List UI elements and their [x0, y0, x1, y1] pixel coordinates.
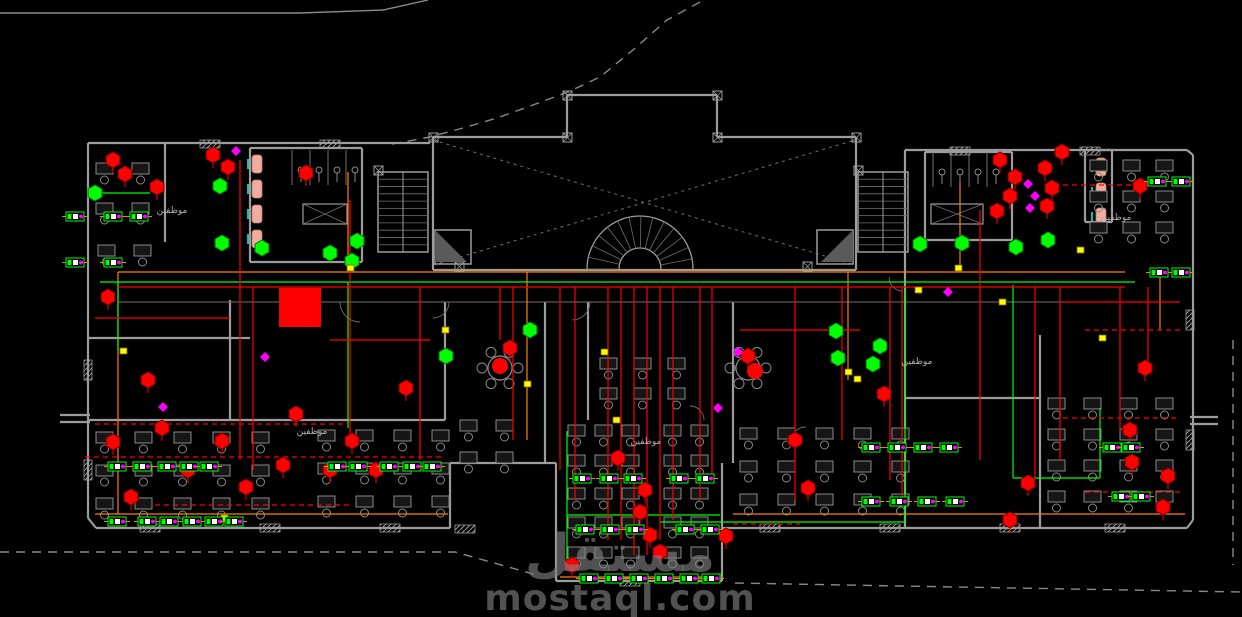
detector-module-strip: [858, 497, 884, 506]
workstation-desk: [1123, 191, 1140, 212]
workstation-desk: [1123, 160, 1140, 181]
workstation-desk: [96, 498, 113, 519]
workstation-desk: [1084, 491, 1101, 512]
wall-hatch: [1186, 310, 1194, 330]
workstation-desk: [778, 494, 795, 515]
workstation-desk: [1048, 491, 1065, 512]
site-boundary-line: [0, 0, 428, 13]
speaker-device-green: [439, 348, 453, 364]
wall-hatch: [200, 140, 220, 148]
room-label: موظفين: [157, 206, 188, 216]
wall-hatch: [760, 524, 780, 532]
sounder-device-red: [565, 557, 579, 578]
workstation-desk: [778, 461, 795, 482]
module-device-magenta: [1030, 191, 1040, 201]
workstation-desk: [691, 547, 708, 568]
door-swing-arc: [690, 406, 704, 420]
workstation-desk: [854, 461, 871, 482]
speaker-device-green: [523, 322, 537, 338]
detector-module-strip: [62, 258, 88, 267]
workstation-desk: [496, 420, 513, 441]
module-device-magenta: [1025, 203, 1035, 213]
workstation-desk: [1048, 398, 1065, 419]
workstation-desk: [740, 461, 757, 482]
speaker-device-green: [255, 240, 269, 256]
workstation-desk: [892, 461, 909, 482]
detector-module-strip: [576, 574, 602, 583]
detector-device-yellow: [442, 327, 449, 333]
wall-hatch: [950, 147, 970, 155]
detector-module-strip: [62, 212, 88, 221]
workstation-desk: [1123, 222, 1140, 243]
detector-device-yellow: [854, 376, 861, 382]
workstation-desk: [460, 420, 477, 441]
wall-hatch: [84, 360, 92, 380]
detector-module-strip: [666, 474, 692, 483]
workstation-desk: [1156, 222, 1173, 243]
speaker-device-green: [913, 236, 927, 252]
detector-module-strip: [884, 443, 910, 452]
detector-module-strip: [156, 517, 182, 526]
sounder-device-red: [1003, 188, 1017, 209]
door-swing-arc: [433, 302, 449, 318]
wall-hatch: [1186, 430, 1194, 450]
speaker-device-green: [866, 356, 880, 372]
stall-figure: [975, 169, 981, 184]
detector-module-strip: [601, 574, 627, 583]
workstation-desk: [1084, 429, 1101, 450]
speaker-device-green: [215, 235, 229, 251]
detector-module-strip: [1168, 268, 1194, 277]
sounder-device-red: [1156, 499, 1170, 520]
wall-segment: [1187, 520, 1193, 528]
detector-device-yellow: [915, 287, 922, 293]
sounder-device-red: [1138, 360, 1152, 381]
speaker-device-green: [829, 323, 843, 339]
workstation-desk: [174, 432, 191, 453]
workstation-desk: [595, 488, 612, 509]
sounder-device-red: [1040, 198, 1054, 219]
detector-module-strip: [129, 462, 155, 471]
detector-module-strip: [620, 474, 646, 483]
workstation-desk: [668, 358, 685, 379]
wall-hatch: [1080, 147, 1100, 155]
workstation-desk: [568, 425, 585, 446]
floor-plan-drawing: موظفينموظفينموظفينموظفينموظفين: [0, 0, 1242, 617]
speaker-device-green: [1009, 239, 1023, 255]
detector-module-strip: [221, 517, 247, 526]
detector-module-strip: [100, 212, 126, 221]
detector-module-strip: [697, 525, 723, 534]
detector-module-strip: [104, 462, 130, 471]
detector-module-strip: [914, 497, 940, 506]
call-point-device: [747, 363, 763, 379]
sounder-device-red: [638, 482, 652, 503]
wall-hatch: [455, 525, 475, 533]
site-boundary-dashed: [735, 583, 1242, 592]
module-device-magenta: [260, 352, 270, 362]
door-swing-arc: [889, 277, 903, 291]
detector-device-yellow: [999, 299, 1006, 305]
detector-device-yellow: [524, 381, 531, 387]
workstation-desk: [816, 428, 833, 449]
room-label: موظفين: [631, 437, 662, 447]
sounder-device-red: [289, 406, 303, 427]
detector-module-strip: [936, 443, 962, 452]
detector-module-strip: [672, 525, 698, 534]
sounder-device-red: [276, 457, 290, 478]
workstation-desk: [1156, 398, 1173, 419]
detector-module-strip: [692, 474, 718, 483]
room-label: موظفين: [902, 357, 933, 367]
sounder-device-red: [215, 433, 229, 454]
detector-device-yellow: [1077, 247, 1084, 253]
speaker-device-green: [955, 235, 969, 251]
cad-viewport[interactable]: موظفينموظفينموظفينموظفينموظفين مستقل mos…: [0, 0, 1242, 617]
detector-module-strip: [886, 497, 912, 506]
workstation-desk: [1090, 222, 1107, 243]
detector-module-strip: [1128, 492, 1154, 501]
sounder-device-red: [118, 166, 132, 187]
wall-hatch: [880, 524, 900, 532]
workstation-desk: [134, 245, 151, 266]
detector-module-strip: [698, 574, 724, 583]
workstation-desk: [740, 494, 757, 515]
detector-module-strip: [345, 462, 371, 471]
staircase: [858, 172, 908, 252]
detector-module-strip: [1118, 443, 1144, 452]
detector-module-strip: [1144, 177, 1170, 186]
workstation-desk: [568, 488, 585, 509]
workstation-desk: [135, 432, 152, 453]
sounder-device-red: [643, 527, 657, 548]
detector-module-strip: [626, 574, 652, 583]
detector-module-strip: [569, 474, 595, 483]
stall-figure: [957, 169, 963, 184]
detector-module-strip: [100, 258, 126, 267]
detector-module-strip: [196, 462, 222, 471]
sounder-device-red: [1161, 468, 1175, 489]
workstation-desk: [634, 388, 651, 409]
detector-module-strip: [597, 525, 623, 534]
fan-staircase: [587, 216, 693, 269]
alarm-panel-block: [279, 288, 321, 327]
sounder-device-red: [399, 380, 413, 401]
workstation-desk: [634, 358, 651, 379]
corner-planter: [817, 230, 853, 264]
sounder-device-red: [1008, 169, 1022, 190]
sounder-device-red: [101, 289, 115, 310]
speaker-device-green: [831, 350, 845, 366]
sounder-device-red: [1021, 475, 1035, 496]
workstation-desk: [740, 428, 757, 449]
wall-hatch: [380, 524, 400, 532]
sounder-device-red: [206, 147, 220, 168]
sounder-device-red: [990, 203, 1004, 224]
workstation-desk: [595, 425, 612, 446]
sounder-device-red: [150, 179, 164, 200]
sounder-device-red: [611, 450, 625, 471]
detector-module-strip: [376, 462, 402, 471]
workstation-desk: [1156, 191, 1173, 212]
sounder-device-red: [239, 479, 253, 500]
workstation-desk: [595, 455, 612, 476]
workstation-desk: [252, 465, 269, 486]
workstation-desk: [1120, 398, 1137, 419]
module-device-magenta: [713, 403, 723, 413]
sounder-device-red: [877, 386, 891, 407]
detector-module-strip: [126, 212, 152, 221]
sounder-device-red: [503, 340, 517, 361]
corner-planter: [435, 230, 471, 264]
wall-segment: [1187, 150, 1193, 155]
sounder-device-red: [653, 544, 667, 565]
module-device-magenta: [1023, 179, 1033, 189]
detector-module-strip: [572, 525, 598, 534]
wall-hatch: [320, 140, 340, 148]
sounder-device-red: [1055, 144, 1069, 165]
detector-device-yellow: [601, 349, 608, 355]
module-device-magenta: [158, 402, 168, 412]
speaker-device-green: [873, 338, 887, 354]
stall-figure: [352, 167, 358, 182]
module-device-magenta: [231, 146, 241, 156]
module-device-magenta: [943, 287, 953, 297]
detector-module-strip: [651, 574, 677, 583]
sounder-device-red: [299, 165, 313, 186]
detector-module-strip: [1168, 177, 1194, 186]
sounder-device-red: [788, 432, 802, 453]
workstation-desk: [174, 498, 191, 519]
sounder-device-red: [345, 433, 359, 454]
speaker-device-green: [350, 233, 364, 249]
detector-device-yellow: [1099, 335, 1106, 341]
workstation-desk: [595, 547, 612, 568]
detector-device-yellow: [845, 369, 852, 375]
stall-figure: [334, 167, 340, 182]
site-boundary-dashed: [387, 2, 700, 145]
sounder-device-red: [221, 159, 235, 180]
workstation-desk: [252, 498, 269, 519]
sounder-device-red: [141, 372, 155, 393]
detector-module-strip: [910, 443, 936, 452]
elevator-shaft: [303, 204, 347, 224]
workstation-desk: [394, 430, 411, 451]
workstation-desk: [1048, 429, 1065, 450]
wall-segment: [88, 518, 96, 528]
workstation-desk: [432, 430, 449, 451]
site-boundary-dashed: [0, 552, 540, 576]
detector-module-strip: [104, 517, 130, 526]
detector-device-yellow: [955, 265, 962, 271]
workstation-desk: [1084, 398, 1101, 419]
workstation-desk: [252, 432, 269, 453]
detector-module-strip: [596, 474, 622, 483]
workstation-desk: [1156, 429, 1173, 450]
detector-module-strip: [858, 443, 884, 452]
detector-device-yellow: [347, 265, 354, 271]
staircase: [378, 172, 428, 252]
detector-device-yellow: [613, 417, 620, 423]
room-label: موظفين: [297, 427, 328, 437]
stall-figure: [316, 167, 322, 182]
detector-device-yellow: [120, 348, 127, 354]
sounder-device-red: [801, 480, 815, 501]
stall-figure: [939, 169, 945, 184]
wall-hatch: [84, 460, 92, 480]
detector-module-strip: [942, 497, 968, 506]
workstation-desk: [816, 494, 833, 515]
elevator-shaft: [931, 204, 983, 224]
speaker-device-green: [88, 185, 102, 201]
workstation-desk: [496, 452, 513, 473]
call-point-device: [492, 358, 508, 374]
detector-module-strip: [419, 462, 445, 471]
workstation-desk: [568, 455, 585, 476]
sounder-device-red: [993, 152, 1007, 173]
detector-module-strip: [622, 525, 648, 534]
workstation-desk: [668, 388, 685, 409]
speaker-device-green: [213, 178, 227, 194]
speaker-device-green: [1041, 232, 1055, 248]
wall-hatch: [260, 524, 280, 532]
room-label: موظفين: [1101, 213, 1132, 223]
stall-figure: [993, 169, 999, 184]
sounder-device-red: [155, 420, 169, 441]
speaker-device-green: [323, 245, 337, 261]
workstation-desk: [132, 163, 149, 184]
workstation-desk: [460, 452, 477, 473]
workstation-desk: [1090, 160, 1107, 181]
sounder-device-red: [1125, 454, 1139, 475]
workstation-desk: [622, 547, 639, 568]
sounder-device-red: [1038, 160, 1052, 181]
wall-hatch: [1105, 524, 1125, 532]
workstation-desk: [816, 461, 833, 482]
